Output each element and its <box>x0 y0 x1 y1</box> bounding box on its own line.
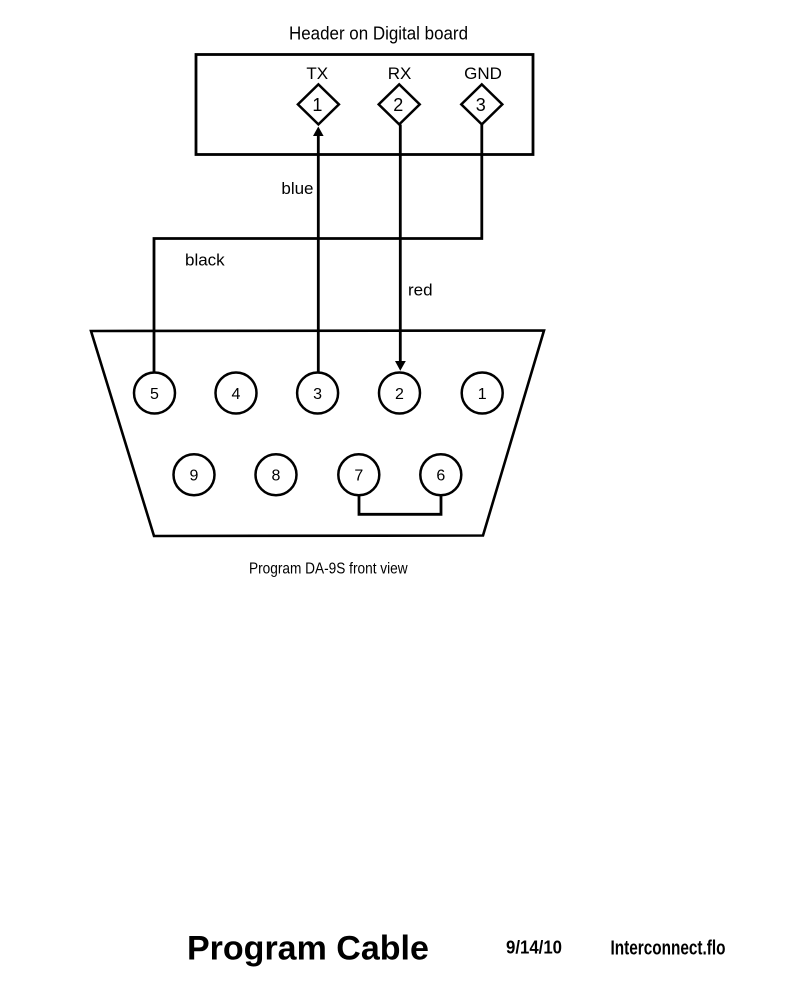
svg-text:7: 7 <box>354 468 363 485</box>
svg-text:Program DA-9S front view: Program DA-9S front view <box>249 561 408 578</box>
svg-text:Program Cable: Program Cable <box>187 930 429 968</box>
svg-text:4: 4 <box>232 386 241 403</box>
svg-text:9: 9 <box>190 468 199 485</box>
svg-text:9/14/10: 9/14/10 <box>506 938 562 958</box>
svg-text:TX: TX <box>306 64 328 83</box>
svg-text:8: 8 <box>272 468 281 485</box>
svg-text:3: 3 <box>313 386 322 403</box>
svg-text:RX: RX <box>388 64 412 83</box>
svg-text:3: 3 <box>476 95 486 115</box>
svg-text:1: 1 <box>312 95 322 115</box>
svg-text:2: 2 <box>395 386 404 403</box>
svg-text:GND: GND <box>464 64 502 83</box>
svg-text:2: 2 <box>393 95 403 115</box>
svg-text:red: red <box>408 281 433 300</box>
svg-text:blue: blue <box>281 179 313 198</box>
svg-text:Interconnect.flo: Interconnect.flo <box>611 938 726 960</box>
svg-text:6: 6 <box>436 468 445 485</box>
svg-text:5: 5 <box>150 386 159 403</box>
svg-text:1: 1 <box>478 386 487 403</box>
svg-text:Header on Digital board: Header on Digital board <box>289 24 468 44</box>
svg-text:black: black <box>185 251 225 270</box>
